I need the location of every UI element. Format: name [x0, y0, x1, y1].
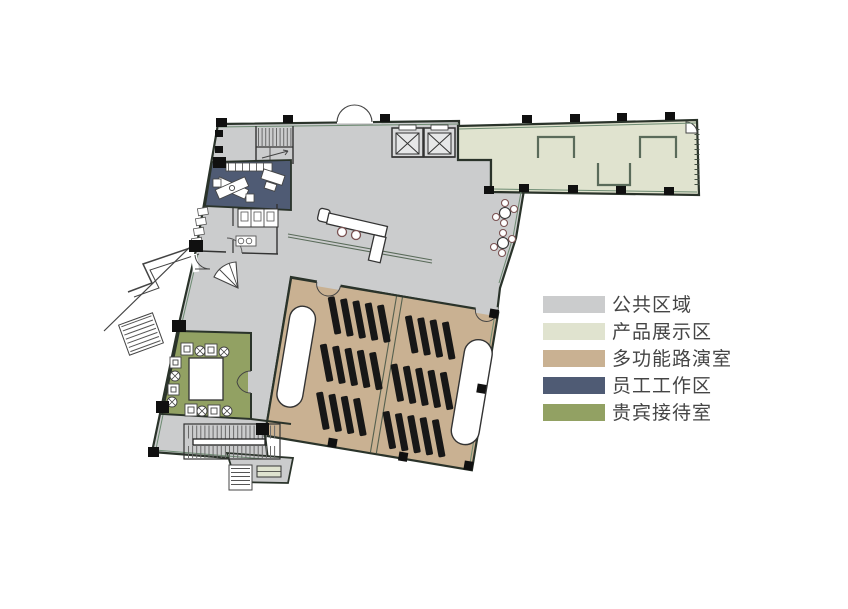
legend-label: 贵宾接待室: [612, 402, 712, 424]
product-display-region: [458, 120, 699, 195]
toilet-stalls-icon: [238, 209, 278, 227]
chair-icon: [213, 179, 221, 187]
floor-plan: 公共区域 产品展示区 多功能路演室 员工工作区 贵宾接待室: [0, 0, 848, 609]
legend-item: 产品展示区: [543, 321, 712, 343]
legend-label: 产品展示区: [612, 321, 712, 343]
legend-swatch: [543, 377, 605, 394]
conference-table-icon: [189, 358, 223, 400]
elevator-icon: [424, 125, 455, 157]
stool-icon: [352, 231, 361, 240]
legend: 公共区域 产品展示区 多功能路演室 员工工作区 贵宾接待室: [543, 294, 732, 424]
legend-swatch: [543, 350, 605, 367]
stool-icon: [338, 228, 347, 237]
sink-icon: [236, 236, 256, 246]
legend-item: 员工工作区: [543, 375, 712, 397]
double-door-icon: [337, 105, 373, 124]
legend-swatch: [543, 296, 605, 313]
legend-item: 贵宾接待室: [543, 402, 712, 424]
legend-swatch: [543, 323, 605, 340]
exterior-steps-icon: [229, 465, 252, 490]
legend-item: 公共区域: [543, 294, 692, 316]
floor-plan-page: 公共区域 产品展示区 多功能路演室 员工工作区 贵宾接待室: [0, 0, 848, 609]
elevator-icon: [392, 125, 423, 157]
legend-label: 多功能路演室: [612, 348, 732, 370]
chair-icon: [246, 194, 254, 202]
legend-swatch: [543, 404, 605, 421]
legend-item: 多功能路演室: [543, 348, 732, 370]
legend-label: 员工工作区: [612, 375, 712, 397]
legend-label: 公共区域: [612, 294, 692, 316]
